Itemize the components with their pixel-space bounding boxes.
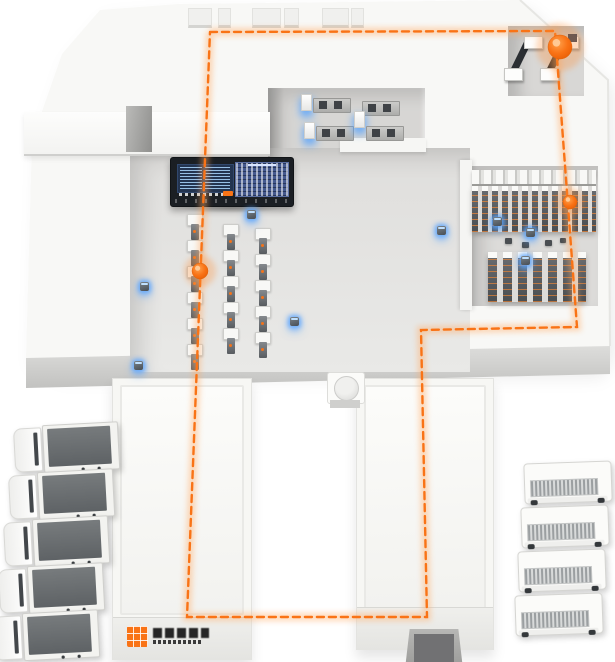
truck-wheel (528, 544, 535, 549)
truck-slot (518, 550, 614, 591)
conveyor-segment (186, 292, 204, 318)
conveyor-segment (186, 318, 204, 344)
floor-crate (560, 238, 566, 243)
corridor-end-shadow (268, 88, 284, 158)
truck-cab (8, 474, 38, 519)
dock-roof-panel (364, 385, 486, 609)
truck-bed (42, 473, 107, 514)
storage-rack-row-upper (472, 186, 596, 232)
loading-dock-right (356, 378, 494, 650)
heavy-truck (8, 468, 114, 519)
iot-sensor-dot (526, 228, 535, 237)
conveyor-rail (191, 302, 199, 318)
left-truck-column (14, 424, 134, 659)
truck-wheel (589, 630, 596, 635)
iot-sensor-dot (140, 282, 149, 291)
brand-logo-text (153, 626, 209, 650)
conveyor-segment (222, 328, 240, 354)
dashboard-orange-indicator (223, 191, 233, 196)
dashboard-screen-left (177, 164, 234, 193)
screen-header-line (248, 164, 276, 166)
floor-crate (545, 240, 552, 246)
conveyor-rail (259, 342, 267, 358)
heavy-truck (0, 609, 99, 660)
box-truck (514, 592, 603, 636)
storage-rack-row-lower (488, 252, 586, 302)
truck-wheel (595, 542, 602, 547)
screen-text-column (205, 167, 230, 189)
truck-slot (9, 471, 129, 517)
skylight (322, 8, 349, 28)
conveyor-segment (254, 280, 272, 306)
dashboard-screen-right (235, 162, 289, 197)
heavy-truck (0, 562, 104, 613)
iot-sensor-dot (247, 210, 256, 219)
workstation-terminal (354, 111, 365, 128)
floor-crate (522, 242, 529, 248)
conveyor-segment (222, 302, 240, 328)
iot-sensor-dot (437, 226, 446, 235)
hall-divider-wall (460, 160, 472, 310)
workstation-desk (316, 126, 354, 141)
dock-roof-panel (120, 385, 244, 615)
conveyor-segment (222, 224, 240, 250)
conveyor-segment (222, 250, 240, 276)
roof-hatch (126, 106, 152, 152)
floor-crate (505, 238, 512, 244)
truck-slot (521, 506, 615, 547)
conveyor-rail (227, 338, 235, 354)
brand-logo (127, 626, 209, 650)
screen-text-column (180, 167, 202, 189)
bay-equipment-box (568, 34, 577, 42)
conveyor-rail (259, 264, 267, 280)
brand-logo-line1 (153, 628, 209, 638)
platform-step (330, 400, 360, 408)
conveyor-rail (191, 276, 199, 292)
truck-ribbed-front (524, 566, 593, 585)
conveyor-rail (191, 224, 199, 240)
box-truck (523, 460, 612, 504)
heavy-truck (13, 421, 119, 472)
truck-wheel (598, 498, 605, 503)
iot-sensor-dot (521, 256, 530, 265)
truck-wheel (531, 500, 538, 505)
conveyor-rail (227, 234, 235, 250)
truck-slot (4, 518, 124, 564)
control-dashboard (170, 157, 294, 207)
workstation-terminal (301, 94, 312, 111)
conveyor-segment (254, 332, 272, 358)
truck-slot (0, 565, 119, 611)
truck-wheel (592, 586, 599, 591)
warehouse-scene (0, 0, 615, 662)
conveyor-segment (186, 344, 204, 370)
truck-wheel (522, 632, 529, 637)
truck-ribbed-front (527, 522, 596, 541)
truck-ribbed-front (521, 610, 590, 629)
iot-sensor-dot (290, 317, 299, 326)
conveyor-segment (254, 306, 272, 332)
conveyor-line (222, 224, 240, 354)
brand-logo-line2 (153, 640, 201, 644)
truck-slot (515, 594, 611, 635)
conveyor-segment (254, 228, 272, 254)
workstation-terminal (304, 122, 315, 139)
heavy-truck (3, 515, 109, 566)
conveyor-segment (186, 214, 204, 240)
conveyor-rail (191, 354, 199, 370)
conveyor-rail (227, 260, 235, 276)
truck-slot (524, 462, 615, 503)
box-truck (517, 548, 606, 592)
iot-sensor-dot (134, 361, 143, 370)
box-truck (520, 504, 609, 548)
conveyor-rail (191, 328, 199, 344)
wall-shelf-conveyor (472, 170, 596, 186)
conveyor-line (254, 228, 272, 358)
skylight (284, 8, 299, 28)
truck-bed (37, 520, 102, 561)
skylight (351, 8, 364, 28)
bay-machine (540, 36, 582, 84)
conveyor-segment (222, 276, 240, 302)
dashboard-bottom-band (175, 199, 289, 203)
workstation-desk (313, 98, 351, 113)
conveyor-rail (259, 238, 267, 254)
right-truck-column (524, 462, 615, 638)
skylight (218, 8, 231, 28)
truck-ribbed-front (530, 478, 599, 497)
conveyor-rail (227, 286, 235, 302)
truck-cab (0, 615, 23, 660)
conveyor-rail (191, 250, 199, 266)
truck-cab (13, 427, 43, 472)
truck-bed (32, 567, 97, 608)
conveyor-rail (259, 316, 267, 332)
conveyor-rail (227, 312, 235, 328)
conveyor-rail (259, 290, 267, 306)
truck-wheel (525, 588, 532, 593)
conveyor-segment (186, 240, 204, 266)
workstation-desk (366, 126, 404, 141)
conveyor-line (186, 214, 204, 370)
truck-slot (14, 424, 134, 470)
workstation-desk (362, 101, 400, 116)
truck-bed (27, 614, 92, 655)
iot-sensor-dot (493, 217, 502, 226)
truck-bed (47, 426, 112, 467)
dock-doorway (405, 629, 463, 662)
skylight (188, 8, 212, 28)
vent-disc (334, 376, 359, 401)
dashboard-ticker-row (179, 193, 223, 196)
conveyor-segment (186, 266, 204, 292)
conveyor-segment (254, 254, 272, 280)
skylight (252, 8, 281, 28)
truck-cab (0, 568, 28, 613)
truck-cab (3, 521, 33, 566)
truck-slot (0, 612, 114, 658)
